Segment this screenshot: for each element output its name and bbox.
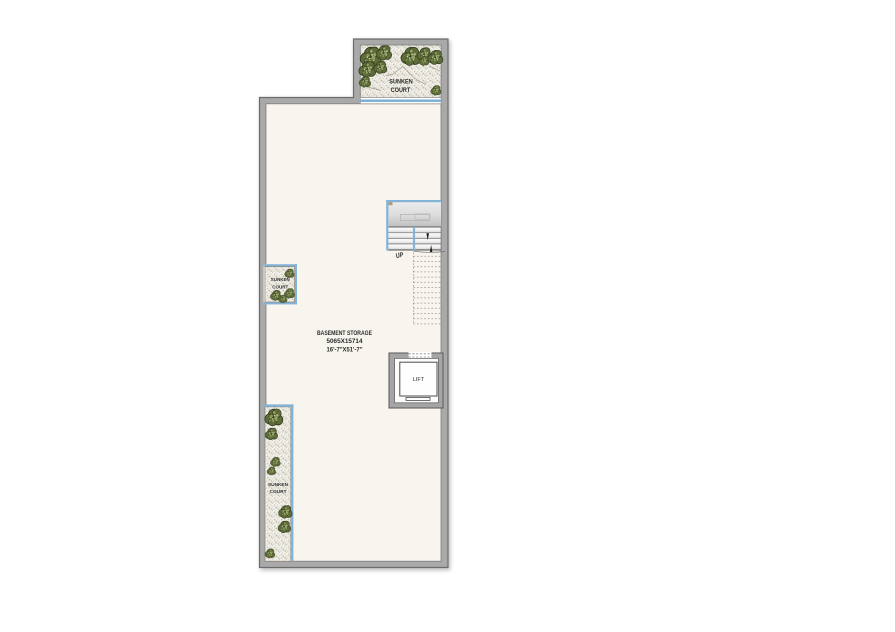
svg-text:5065X15714: 5065X15714 xyxy=(327,339,364,345)
svg-text:SUNKEN: SUNKEN xyxy=(271,277,290,283)
svg-text:COURT: COURT xyxy=(391,88,411,94)
svg-text:COURT: COURT xyxy=(272,284,288,290)
svg-text:COURT: COURT xyxy=(270,489,287,495)
svg-text:SUNKEN: SUNKEN xyxy=(268,482,289,488)
svg-text:BASEMENT STORAGE: BASEMENT STORAGE xyxy=(317,331,372,337)
svg-text:UP: UP xyxy=(395,252,404,260)
svg-text:16'-7"X51'-7": 16'-7"X51'-7" xyxy=(327,348,363,354)
svg-text:SUNKEN: SUNKEN xyxy=(389,79,413,85)
svg-text:LIFT: LIFT xyxy=(413,377,425,383)
